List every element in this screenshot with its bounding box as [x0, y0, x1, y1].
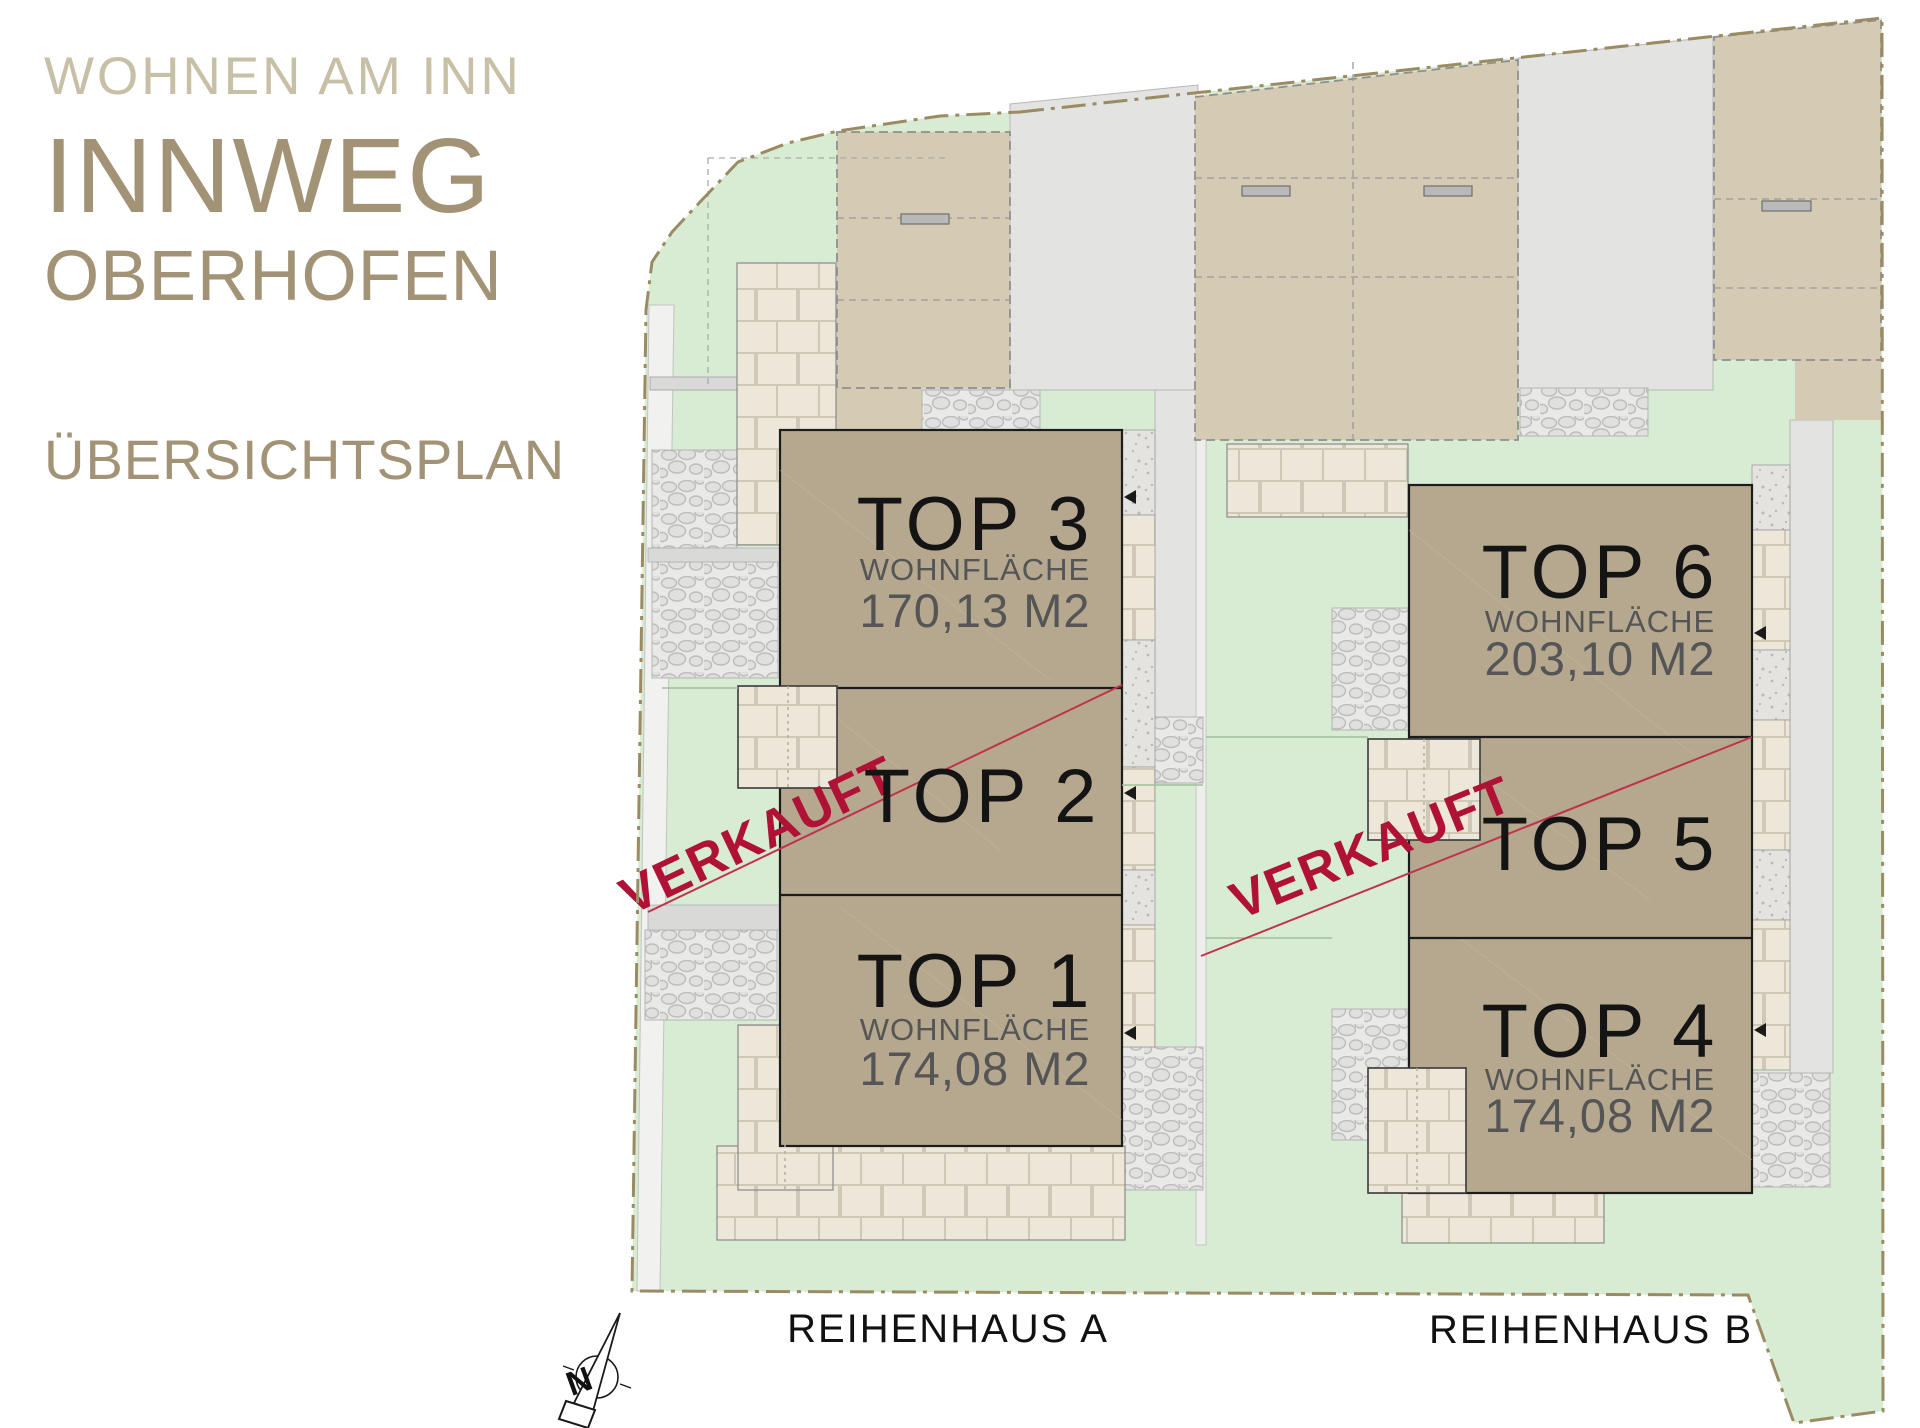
- north-arrow-icon: N: [559, 1313, 631, 1428]
- parking-area: [1010, 85, 1198, 390]
- garage-b: [1195, 60, 1518, 440]
- upper-road: [1518, 37, 1713, 390]
- garage-c: [1714, 20, 1881, 360]
- location-title: OBERHOFEN: [44, 241, 565, 312]
- project-title: WOHNEN AM INN: [44, 50, 565, 103]
- unit-top3-label: TOP 3 WOHNFLÄCHE 170,13 M2: [857, 482, 1094, 637]
- unit-top1-label: TOP 1 WOHNFLÄCHE 174,08 M2: [857, 939, 1094, 1095]
- unit-top6-label: TOP 6 WOHNFLÄCHE 203,10 M2: [1482, 530, 1719, 685]
- site-plan-page: WOHNEN AM INN INNWEG OBERHOFEN ÜBERSICHT…: [0, 0, 1920, 1428]
- plan-subtitle: ÜBERSICHTSPLAN: [44, 432, 565, 488]
- entry-strips-a: [1122, 430, 1155, 1047]
- unit-top1-area: 174,08 M2: [859, 1042, 1090, 1095]
- house-b-label: REIHENHAUS B: [1429, 1308, 1753, 1352]
- unit-top6-area: 203,10 M2: [1484, 632, 1715, 685]
- house-a-label: REIHENHAUS A: [787, 1307, 1109, 1351]
- east-road: [1790, 420, 1833, 1073]
- unit-top3-arealabel: WOHNFLÄCHE: [860, 552, 1090, 587]
- unit-top4-area: 174,08 M2: [1484, 1089, 1715, 1142]
- upper-terrace: [836, 388, 922, 430]
- development-name: INNWEG: [44, 123, 565, 229]
- title-block: WOHNEN AM INN INNWEG OBERHOFEN ÜBERSICHT…: [44, 50, 565, 488]
- entry-strips-b: [1752, 465, 1790, 1070]
- unit-top2-name: TOP 2: [864, 754, 1101, 839]
- unit-top5-label: TOP 5: [1482, 802, 1719, 887]
- unit-top6-name: TOP 6: [1482, 530, 1719, 615]
- unit-top4-label: TOP 4 WOHNFLÄCHE 174,08 M2: [1482, 989, 1719, 1142]
- garage-a: [837, 132, 1010, 388]
- unit-top3-area: 170,13 M2: [859, 584, 1090, 637]
- unit-top2-label: TOP 2: [864, 754, 1101, 839]
- east-terrace: [1795, 360, 1881, 420]
- unit-top5-name: TOP 5: [1482, 802, 1719, 887]
